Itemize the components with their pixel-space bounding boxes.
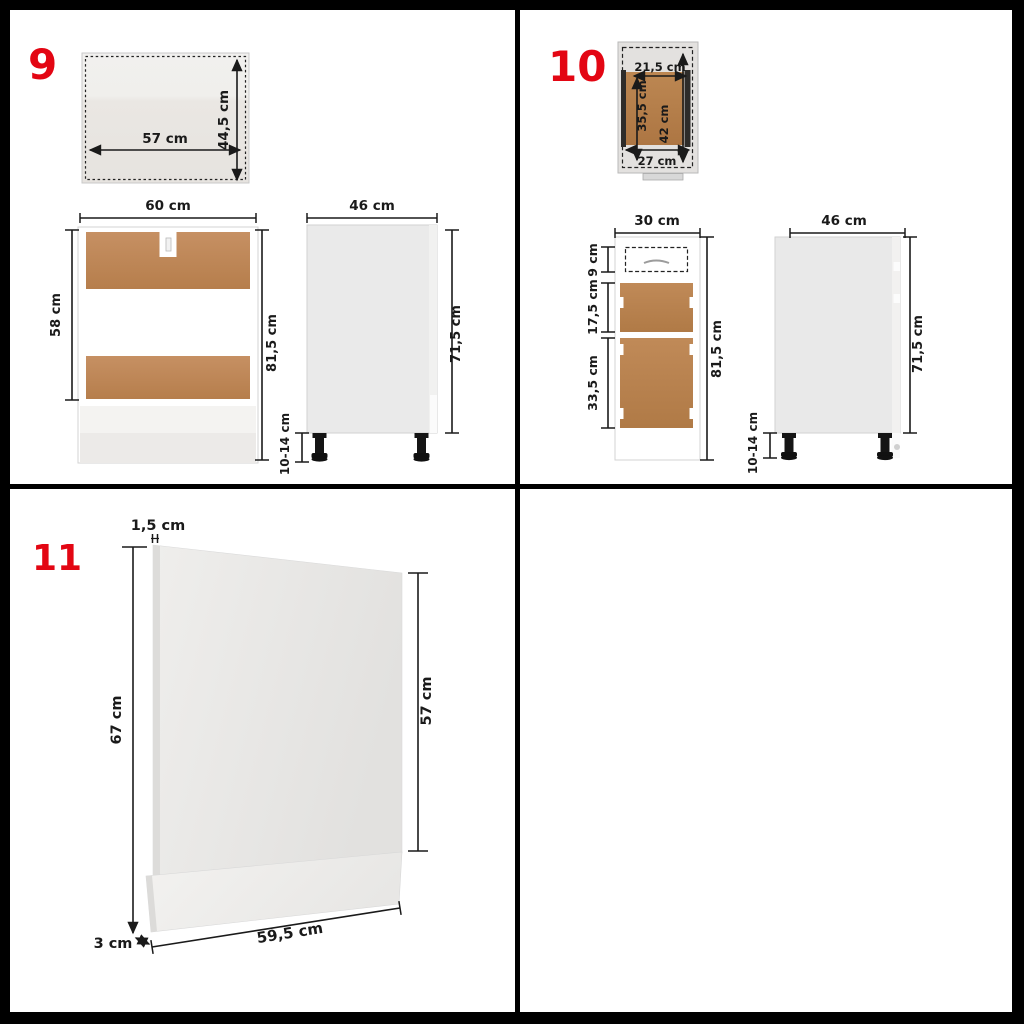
svg-text:46 cm: 46 cm (349, 198, 395, 214)
quadrant-panel-10: 10 (520, 10, 1012, 484)
p10-wood-middle (620, 283, 693, 332)
svg-text:57 cm: 57 cm (419, 677, 435, 726)
p10-side-mark (894, 294, 901, 303)
svg-text:57 cm: 57 cm (142, 131, 188, 147)
p10-side-rail-right (685, 70, 691, 147)
dim-p10-middle: 17,5 cm (585, 279, 615, 335)
p10-side-mark (894, 262, 901, 271)
p9-front-view: 60 cm 58 cm 81,5 cm (49, 198, 280, 463)
quadrant-panel-9: 9 (10, 10, 515, 484)
hinge-mark (619, 297, 624, 308)
dim-p9-depth: 46 cm (307, 198, 437, 223)
svg-text:81,5 cm: 81,5 cm (265, 314, 280, 372)
svg-text:17,5 cm: 17,5 cm (585, 279, 600, 335)
dim-p10-inner-width: 21,5 cm (634, 60, 686, 76)
svg-text:10-14 cm: 10-14 cm (746, 412, 760, 474)
dim-p11-height-right: 57 cm (408, 573, 435, 851)
dim-p10-front-width: 30 cm (615, 213, 700, 238)
p9-top-view: 44,5 cm 57 cm (82, 53, 249, 183)
p9-wood-bottom-band (86, 356, 250, 399)
dim-p10-total-height: 81,5 cm (700, 237, 725, 460)
svg-text:44,5 cm: 44,5 cm (216, 90, 232, 150)
svg-text:42 cm: 42 cm (657, 105, 671, 144)
dim-p11-thickness: 1,5 cm (131, 518, 185, 543)
svg-text:35,5 cm: 35,5 cm (635, 80, 649, 131)
svg-text:81,5 cm: 81,5 cm (710, 320, 725, 378)
hinge-mark (619, 344, 624, 355)
hinge-mark (690, 408, 695, 419)
svg-text:21,5 cm: 21,5 cm (634, 60, 685, 74)
cabinet-leg (877, 433, 893, 460)
leg-adjuster-knob (894, 444, 900, 450)
hinge-mark (619, 408, 624, 419)
panel-11-drawing: 1,5 cm 67 cm 3 cm 57 cm (10, 489, 515, 1012)
dim-p9-legs: 10-14 cm (278, 413, 309, 475)
dim-p10-depth: 46 cm (790, 213, 905, 238)
p10-front-view: 30 cm 9 cm 17,5 cm 33,5 cm (585, 213, 725, 460)
dim-p10-side-height: 71,5 cm (903, 237, 926, 433)
svg-text:30 cm: 30 cm (634, 213, 680, 229)
svg-text:71,5 cm: 71,5 cm (911, 315, 926, 373)
dim-p9-opening-height: 58 cm (49, 230, 79, 400)
dimension-diagram-sheet: 9 (0, 0, 1024, 1024)
dim-p11-plinth-offset: 3 cm (94, 936, 149, 952)
svg-text:67 cm: 67 cm (109, 696, 125, 745)
svg-text:10-14 cm: 10-14 cm (278, 413, 292, 475)
svg-text:60 cm: 60 cm (145, 198, 191, 214)
p9-plinth-lower (80, 433, 256, 463)
svg-text:9 cm: 9 cm (585, 243, 600, 276)
svg-text:1,5 cm: 1,5 cm (131, 518, 185, 534)
dim-p10-legs: 10-14 cm (746, 412, 777, 474)
p10-side-rail-left (621, 70, 626, 147)
dim-p10-door: 33,5 cm (585, 338, 615, 428)
p10-wood-door (620, 338, 693, 428)
p9-cabinet-side (307, 225, 437, 433)
dim-p9-front-width: 60 cm (80, 198, 256, 223)
svg-text:27 cm: 27 cm (638, 154, 677, 168)
hinge-mark (690, 297, 695, 308)
p11-main-face (153, 545, 402, 877)
dim-p11-height-left: 67 cm (109, 547, 147, 933)
quadrant-panel-11: 11 1,5 cm (10, 489, 515, 1012)
cabinet-leg (781, 433, 797, 460)
panel-10-drawing: 21,5 cm 35,5 cm 42 cm 27 cm (520, 10, 1012, 484)
p9-side-notch (430, 395, 437, 433)
svg-text:59,5 cm: 59,5 cm (255, 919, 324, 947)
hinge-mark (690, 344, 695, 355)
dim-p9-total-height: 81,5 cm (255, 230, 280, 460)
p10-top-tab (643, 174, 683, 181)
p11-left-edge (153, 545, 160, 877)
svg-text:33,5 cm: 33,5 cm (585, 355, 600, 411)
p9-plinth-upper (80, 406, 256, 433)
p11-panel (146, 545, 402, 932)
svg-text:71,5 cm: 71,5 cm (449, 305, 464, 363)
p10-cabinet-side (775, 237, 900, 433)
p9-side-view: 46 cm 71,5 cm 10-14 cm (278, 198, 464, 475)
svg-text:46 cm: 46 cm (821, 213, 867, 229)
panel-9-drawing: 44,5 cm 57 cm 60 cm (10, 10, 515, 484)
p9-notch-slot (166, 238, 171, 251)
dim-p9-side-height: 71,5 cm (445, 230, 464, 433)
cabinet-leg (312, 433, 328, 462)
svg-text:58 cm: 58 cm (49, 293, 64, 337)
p10-top-view: 21,5 cm 35,5 cm 42 cm 27 cm (618, 42, 698, 180)
cabinet-leg (414, 433, 430, 462)
p10-side-view: 46 cm 71,5 cm 10-14 cm (746, 213, 926, 474)
dim-p10-drawer: 9 cm (585, 243, 615, 276)
svg-text:3 cm: 3 cm (94, 936, 133, 952)
empty-quadrant (520, 489, 1012, 1012)
